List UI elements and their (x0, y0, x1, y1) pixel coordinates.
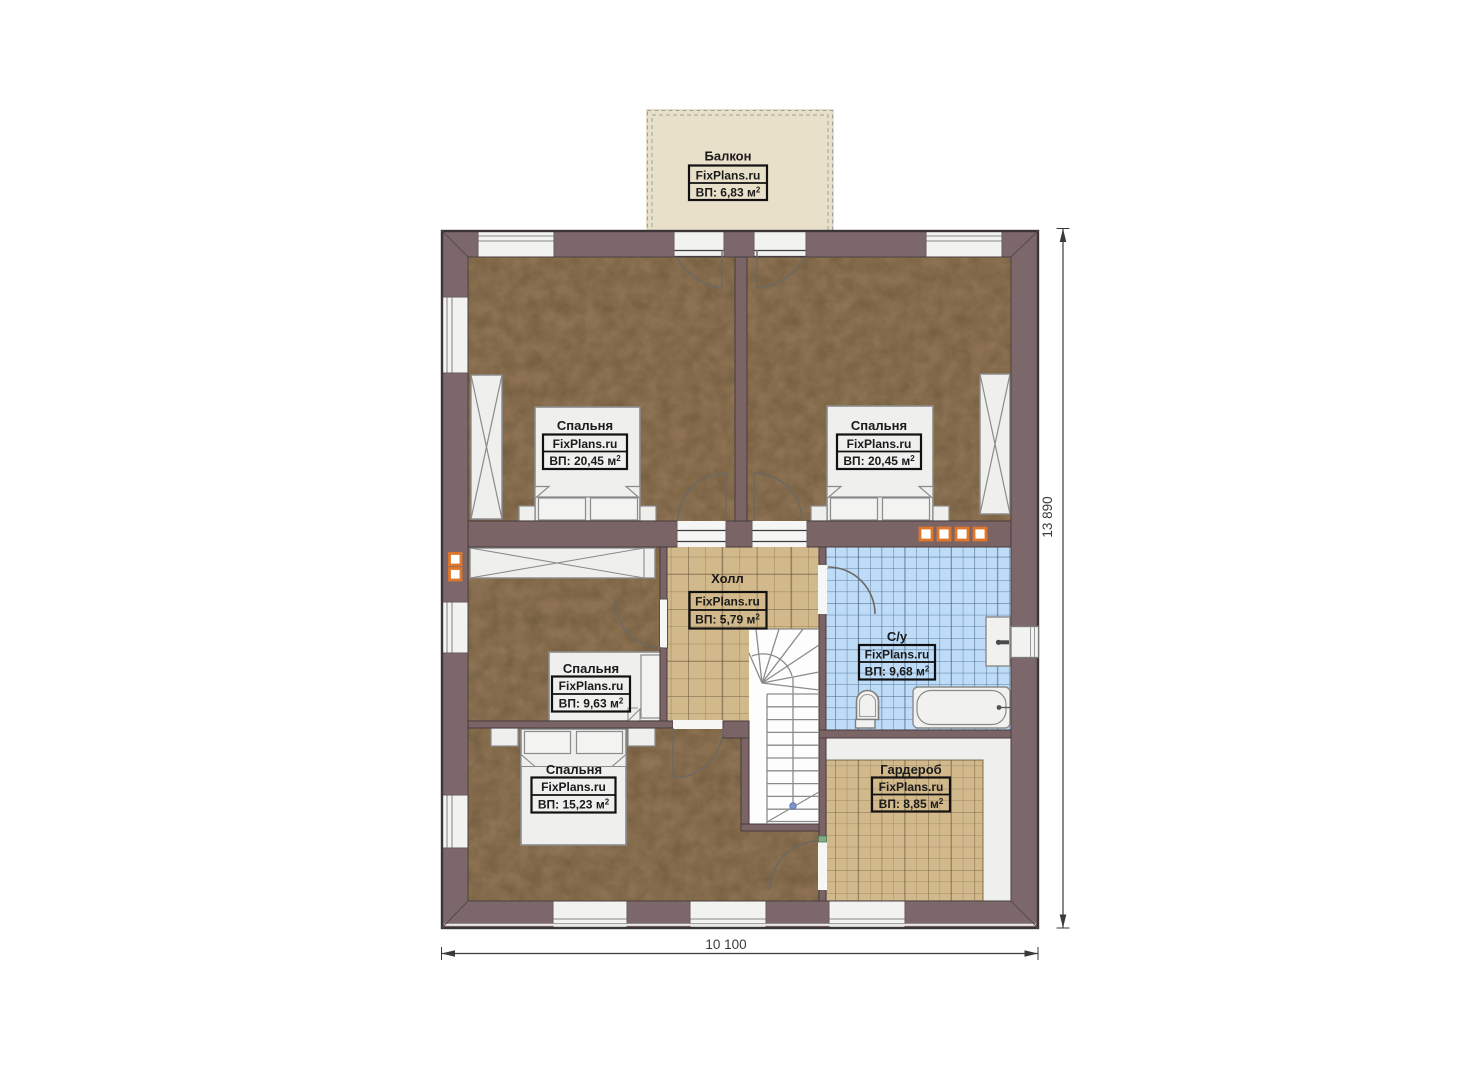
svg-text:13 890: 13 890 (1040, 496, 1055, 537)
svg-text:ВП: 20,45 м2: ВП: 20,45 м2 (843, 454, 915, 468)
svg-text:FixPlans.ru: FixPlans.ru (559, 679, 624, 693)
svg-text:Спальня: Спальня (546, 762, 602, 777)
svg-text:Спальня: Спальня (563, 661, 619, 676)
svg-text:ВП: 15,23 м2: ВП: 15,23 м2 (538, 798, 610, 812)
svg-text:Спальня: Спальня (851, 418, 907, 433)
svg-text:Холл: Холл (711, 571, 744, 586)
svg-text:ВП: 9,63 м2: ВП: 9,63 м2 (559, 697, 624, 711)
svg-text:Балкон: Балкон (705, 149, 752, 164)
svg-text:Гардероб: Гардероб (880, 762, 941, 777)
svg-text:FixPlans.ru: FixPlans.ru (847, 437, 912, 451)
svg-text:ВП: 5,79 м2: ВП: 5,79 м2 (695, 613, 760, 627)
svg-text:FixPlans.ru: FixPlans.ru (696, 169, 761, 183)
svg-text:FixPlans.ru: FixPlans.ru (695, 595, 760, 609)
svg-text:Спальня: Спальня (557, 418, 613, 433)
svg-text:FixPlans.ru: FixPlans.ru (865, 648, 930, 662)
svg-text:С/у: С/у (887, 629, 908, 644)
svg-text:FixPlans.ru: FixPlans.ru (553, 437, 618, 451)
svg-text:10 100: 10 100 (705, 937, 746, 952)
svg-text:FixPlans.ru: FixPlans.ru (879, 780, 944, 794)
svg-text:ВП: 9,68 м2: ВП: 9,68 м2 (865, 665, 930, 679)
svg-text:ВП: 20,45 м2: ВП: 20,45 м2 (549, 454, 621, 468)
svg-text:FixPlans.ru: FixPlans.ru (541, 780, 606, 794)
svg-text:ВП: 6,83 м2: ВП: 6,83 м2 (696, 186, 761, 200)
svg-text:ВП: 8,85 м2: ВП: 8,85 м2 (879, 797, 944, 811)
